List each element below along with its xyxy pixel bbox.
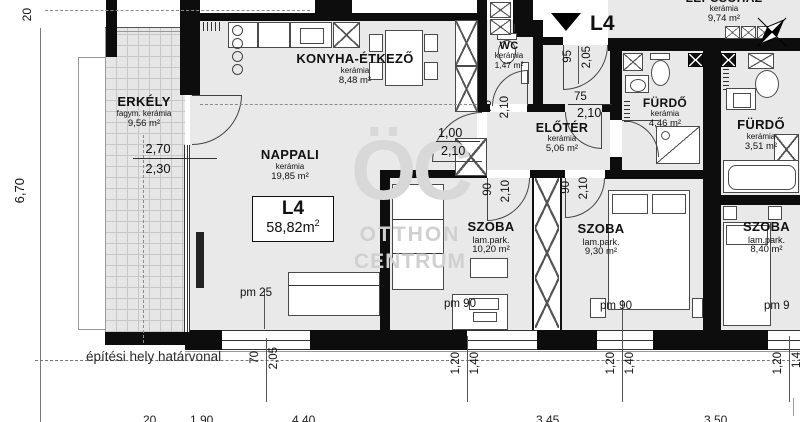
unit-area-value: 58,82m (266, 220, 314, 236)
toilet-icon (651, 60, 670, 86)
radiator-icon (203, 22, 223, 31)
room-area: 4,46 m² (630, 119, 700, 130)
room-name: ERKÉLY (103, 95, 185, 110)
room-name: ELŐTÉR (520, 121, 604, 135)
room-area: 5,06 m² (520, 144, 604, 155)
bathtub-icon (723, 160, 799, 193)
dim-living-door-width: 1,00 (438, 126, 462, 140)
wall (185, 330, 222, 350)
balcony-outer-line (78, 329, 105, 330)
burner-icon (232, 64, 243, 75)
burner-icon (232, 51, 243, 62)
chair (369, 34, 383, 52)
dim-window1-a: 1,20 (450, 352, 462, 374)
dim-tick (622, 300, 623, 402)
room-name: SZOBA (733, 220, 800, 235)
towel-radiator-icon (723, 64, 729, 90)
stove-icon (228, 22, 258, 48)
chair (424, 34, 438, 52)
unit-area-sup: 2 (315, 218, 320, 228)
unit-code: L4 (253, 199, 333, 218)
dim-wc-door-height: 2,10 (499, 96, 511, 118)
room-area: 10,20 m² (455, 245, 527, 256)
wall (602, 104, 610, 112)
dim-balcony-top: 2,70 (128, 141, 188, 156)
wall (721, 195, 800, 205)
toilet-icon (755, 70, 779, 98)
shower-icon (656, 126, 700, 164)
shaft-hatch (535, 278, 559, 328)
dim-window3-b: 1,4 (791, 352, 800, 368)
window-bedroom-2 (597, 330, 653, 350)
duct-icon (721, 53, 736, 67)
sink-icon (290, 22, 332, 48)
nightstand (723, 206, 737, 220)
basin-bowl (630, 79, 646, 92)
sofa (288, 272, 380, 316)
balcony-edge (105, 28, 106, 332)
dim-bottom-4: 3,45 (536, 413, 559, 422)
wall (703, 51, 721, 330)
shaft-hatch (535, 178, 559, 228)
tv-cabinet (196, 232, 204, 288)
dim-bottom-5: 3,50 (704, 413, 727, 422)
dim-window2-a: 1,20 (605, 352, 617, 374)
wall (610, 51, 622, 120)
floor-plan: ÖC OTTHON CENTRUM ERKÉLY fagym. kerámia … (0, 0, 800, 422)
dim-tick (789, 336, 790, 402)
balcony-door-leaf (192, 95, 242, 96)
parapet-label-bedroom3: pm 9 (764, 300, 790, 312)
door-leaf (527, 70, 528, 106)
boundary-label: építési hely határvonal (86, 349, 221, 364)
dim-window3-a: 1,20 (772, 352, 784, 374)
wall (105, 332, 185, 345)
wall (537, 330, 597, 350)
room-balcony (105, 28, 185, 332)
washbasin-icon (726, 88, 756, 110)
shaft-hatch (535, 228, 559, 278)
nightstand (768, 206, 782, 220)
nightstand (692, 298, 703, 318)
room-name: SZOBA (566, 222, 636, 237)
wardrobe (455, 66, 478, 112)
room-label-bathroom-2: FÜRDŐ kerámia 3,51 m² (727, 118, 795, 152)
dim-window2-b: 1,40 (624, 352, 636, 374)
wall (530, 170, 565, 178)
dim-entry-width: 95 (562, 50, 574, 63)
tub-inner (728, 165, 796, 190)
room-area: 1,47 m² (486, 61, 532, 71)
basin-bowl (733, 93, 751, 108)
toilet-tank (650, 53, 670, 60)
dim-entry2-height: 2,10 (577, 106, 601, 120)
dim-bedroom2-door-height: 2,10 (578, 177, 590, 199)
dim-bedroom1-door-height: 2,10 (500, 180, 512, 202)
parapet-label-bedroom1: pm 90 (444, 298, 476, 310)
room-label-bathroom-1: FÜRDŐ kerámia 4,46 m² (630, 97, 700, 130)
wall (533, 20, 543, 104)
pillow (652, 194, 686, 214)
dim-base-height: 2,05 (268, 347, 280, 369)
wall (605, 170, 703, 179)
room-area: 8,40 m² (733, 245, 800, 256)
wall (653, 330, 768, 350)
room-label-kitchen: KONYHA-ÉTKEZŐ kerámia 8,48 m² (285, 52, 425, 86)
installation-shaft (532, 178, 562, 330)
balcony-rail (105, 31, 185, 32)
kitchen-counter (258, 22, 290, 48)
window-bedroom-1 (467, 330, 537, 350)
stove-burners (229, 23, 257, 77)
watermark-centrum: CENTRUM (348, 251, 472, 272)
wall (315, 0, 352, 13)
dim-bottom-1: 20 (143, 413, 156, 422)
wall (180, 0, 200, 95)
unit-area-box: L4 58,82m2 (252, 196, 334, 242)
room-label-bedroom-2: SZOBA lam.park. 9,30 m² (566, 222, 636, 257)
wall (310, 330, 467, 350)
room-area: 19,85 m² (240, 172, 340, 183)
dim-top-left: 20 (20, 8, 34, 21)
room-label-balcony: ERKÉLY fagym. kerámia 9,56 m² (103, 95, 185, 129)
room-name: SZOBA (455, 220, 527, 235)
room-label-wc: WC kerámia 1,47 m² (486, 40, 532, 71)
dashed-line-top (45, 10, 310, 11)
shelf (470, 258, 508, 278)
burner-icon (232, 25, 243, 36)
burner-icon (232, 38, 243, 49)
dim-base-width: 70 (249, 351, 261, 364)
room-label-hall: ELŐTÉR kerámia 5,06 m² (520, 121, 604, 155)
room-name: KONYHA-ÉTKEZŐ (285, 52, 425, 67)
dim-tick (266, 338, 267, 402)
duct-icon (688, 53, 703, 67)
dim-tick (793, 398, 794, 416)
room-label-livingroom: NAPPALI kerámia 19,85 m² (240, 148, 340, 182)
kitchen-living-divider (200, 104, 477, 105)
entrance-unit-label: L4 (590, 12, 615, 36)
dim-line (578, 46, 579, 84)
room-area: 9,56 m² (103, 119, 185, 130)
vent-shaft-icon (490, 19, 511, 35)
vent-shaft-icon (623, 53, 643, 71)
entrance-arrow-icon (551, 13, 581, 31)
dim-bedroom1-door-width: 90 (482, 183, 494, 196)
kitchen-cabinet-icon (333, 22, 360, 48)
chair (424, 62, 438, 80)
dim-line-left (40, 28, 41, 422)
dim-bottom-2: 1,90 (190, 413, 213, 422)
vent-shaft-icon (490, 2, 511, 18)
dim-living-door-height: 2,10 (441, 144, 465, 158)
vent-shaft-icon (725, 26, 740, 39)
dim-balcony-bot: 2,30 (128, 161, 188, 176)
room-area: 9,30 m² (566, 247, 636, 258)
dim-entry2-width: 75 (574, 91, 587, 103)
room-label-bedroom-1: SZOBA lam.park. 10,20 m² (455, 220, 527, 255)
parapet-label-livingroom: pm 25 (240, 287, 272, 299)
dim-bottom-3: 4,40 (292, 413, 315, 422)
washbasin-icon (625, 75, 649, 93)
wardrobe (455, 20, 478, 66)
shower-head (661, 131, 670, 140)
pillow (612, 194, 648, 214)
dim-line (568, 104, 612, 105)
room-name: FÜRDŐ (727, 118, 795, 133)
unit-area: 58,82m2 (253, 218, 333, 237)
dim-left-height: 6,70 (12, 178, 27, 203)
dim-window1-b: 1,40 (469, 352, 481, 374)
window-bedroom-3 (768, 330, 800, 350)
room-area: 3,51 m² (727, 142, 795, 153)
balcony-outer-line (78, 57, 79, 330)
dim-tick (467, 336, 468, 402)
wall (200, 13, 477, 21)
sink-basin (300, 28, 324, 44)
parapet-label-bedroom2: pm 90 (600, 300, 632, 312)
wall (106, 0, 117, 57)
watermark-otthon: OTTHON (348, 224, 472, 245)
room-label-bedroom-3: SZOBA lam.park. 8,40 m² (733, 220, 800, 255)
wall (533, 104, 565, 112)
dim-wc-door-width: 75 (482, 100, 494, 113)
room-area: 8,48 m² (285, 76, 425, 87)
room-name: NAPPALI (240, 148, 340, 163)
balcony-outer-line (78, 57, 105, 58)
room-name: FÜRDŐ (630, 97, 700, 110)
dim-line (436, 141, 480, 142)
keyboard-icon (473, 312, 497, 322)
balcony-rail (105, 27, 185, 28)
dim-line (133, 158, 217, 159)
dim-entry-height: 2,05 (581, 46, 593, 68)
dim-bedroom2-door-width: 90 (560, 181, 572, 194)
